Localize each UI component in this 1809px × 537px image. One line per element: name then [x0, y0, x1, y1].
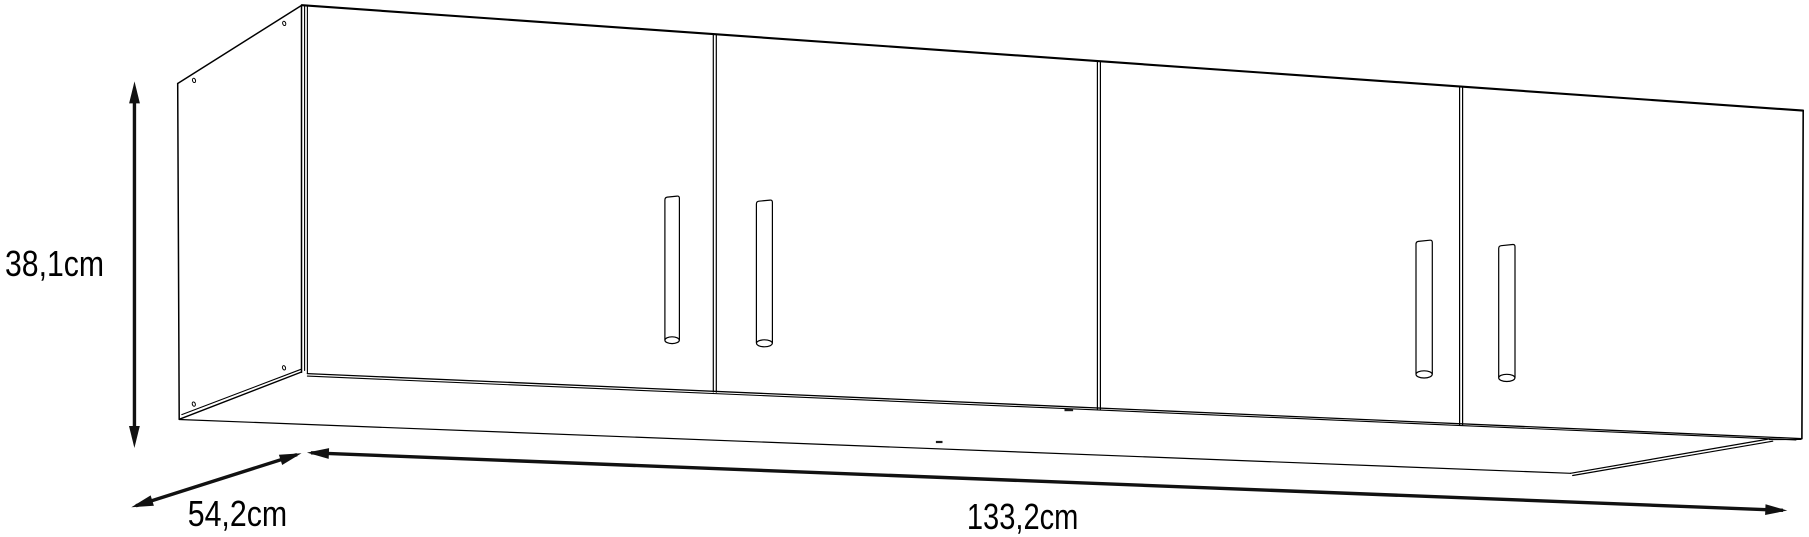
svg-text:133,2cm: 133,2cm	[967, 496, 1079, 537]
svg-text:38,1cm: 38,1cm	[5, 243, 104, 284]
svg-text:54,2cm: 54,2cm	[188, 493, 288, 534]
